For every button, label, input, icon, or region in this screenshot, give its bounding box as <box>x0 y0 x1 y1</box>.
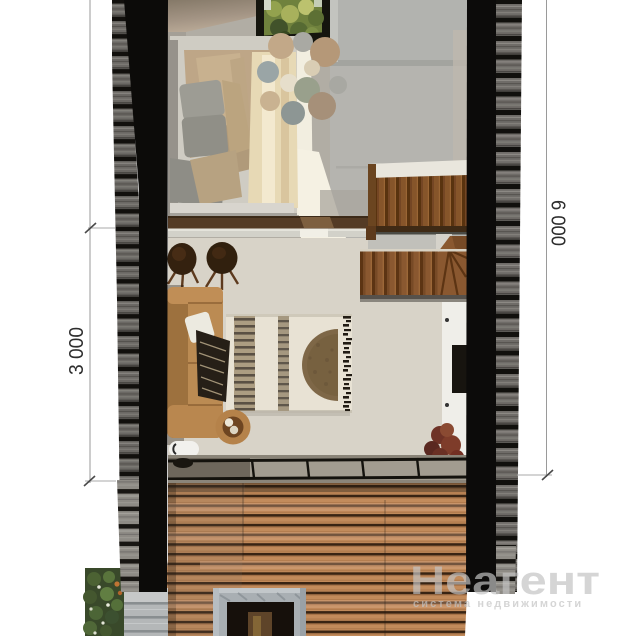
svg-text:Неагент: Неагент <box>410 559 600 603</box>
svg-text:3 000: 3 000 <box>66 327 88 375</box>
svg-text:система недвижимости: система недвижимости <box>413 598 583 610</box>
svg-text:6 000: 6 000 <box>547 200 569 246</box>
